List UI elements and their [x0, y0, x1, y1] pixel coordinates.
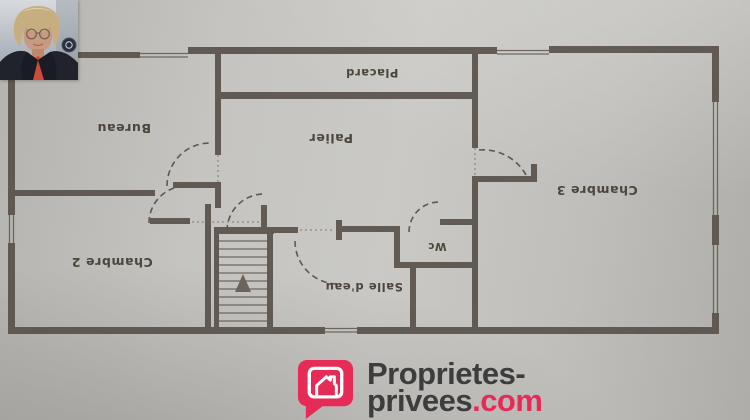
room-label-chambre3: Chambre 3	[556, 183, 638, 198]
room-label-chambre2: Chambre 2	[71, 255, 153, 270]
room-label-palier: Palier	[309, 131, 353, 146]
brand-tld: .com	[472, 383, 542, 418]
room-label-wc: Wc	[427, 240, 446, 252]
brand-wordmark: Proprietes- privees.com	[367, 360, 542, 414]
listing-image: Placard Palier Bureau Chambre 3 Chambre …	[0, 0, 750, 420]
room-label-placard: Placard	[346, 66, 399, 80]
agent-photo	[0, 0, 78, 80]
agent-badge	[62, 38, 76, 52]
room-label-bureau: Bureau	[97, 121, 151, 136]
brand-icon	[297, 359, 354, 420]
brand-logo: Proprietes- privees.com	[297, 359, 542, 420]
brand-line2: privees.com	[367, 387, 542, 414]
room-label-salle-eau: Salle d'eau	[325, 280, 403, 294]
